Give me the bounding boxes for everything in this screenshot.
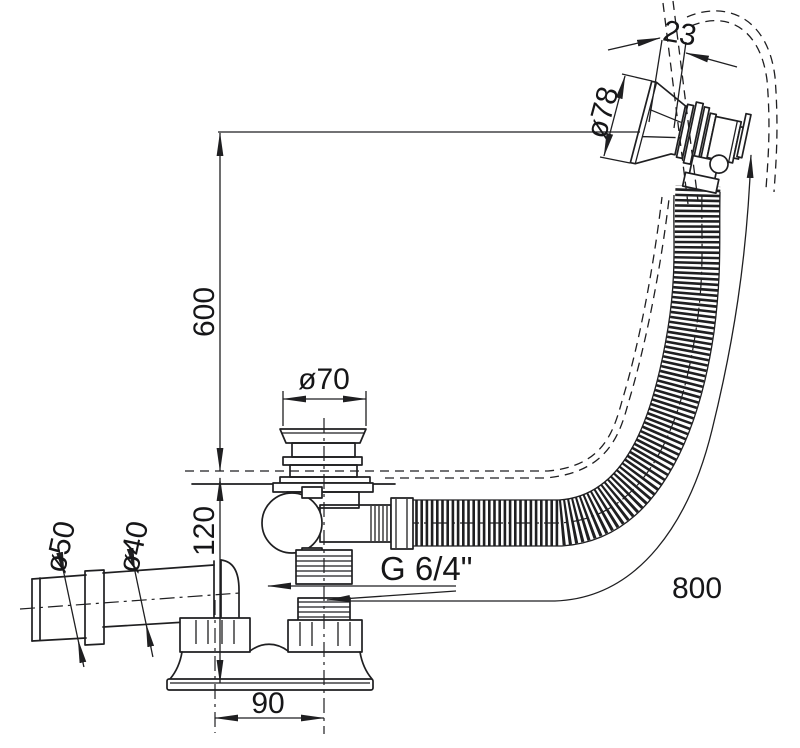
dim-90-label: 90 <box>251 687 284 720</box>
dimension-dia50-outlet: ø50 <box>39 518 84 667</box>
siphon-outlet <box>320 498 413 549</box>
corrugated-hose <box>320 186 720 546</box>
dim-dia70-label: ø70 <box>298 363 350 396</box>
pipe-collar <box>85 570 104 645</box>
dimension-600-overflow-height: 600 <box>188 132 640 471</box>
dim-dia50-label: ø50 <box>39 518 82 575</box>
drain-flange <box>273 483 373 492</box>
drain-assembly-drawing: 800 <box>0 0 800 748</box>
pipe-centerline <box>20 593 240 609</box>
dim-800-label: 800 <box>672 572 722 605</box>
dim-dia40-label: ø40 <box>112 518 155 575</box>
tub-bottom-phantom-line <box>185 197 669 478</box>
dim-600-label: 600 <box>188 287 221 337</box>
drain-plug <box>280 429 370 483</box>
pipe-end-cap <box>32 578 40 641</box>
dim-23-label: 23 <box>660 14 699 52</box>
dimension-dia40-outlet: ø40 <box>112 518 155 657</box>
trap-inlet-nut <box>288 620 362 652</box>
trap <box>167 598 373 690</box>
dimension-dia70-plug: ø70 <box>283 363 366 426</box>
technical-drawing-page: 800 <box>0 0 800 748</box>
siphon-ball <box>262 487 322 559</box>
thread-label: G 6/4" <box>380 550 472 587</box>
dim-dia78-label: ø78 <box>580 83 625 141</box>
dim-120-label: 120 <box>188 506 221 556</box>
hose-nut-bottom <box>391 498 413 549</box>
dimension-90-trap-offset: 90 <box>215 687 324 720</box>
